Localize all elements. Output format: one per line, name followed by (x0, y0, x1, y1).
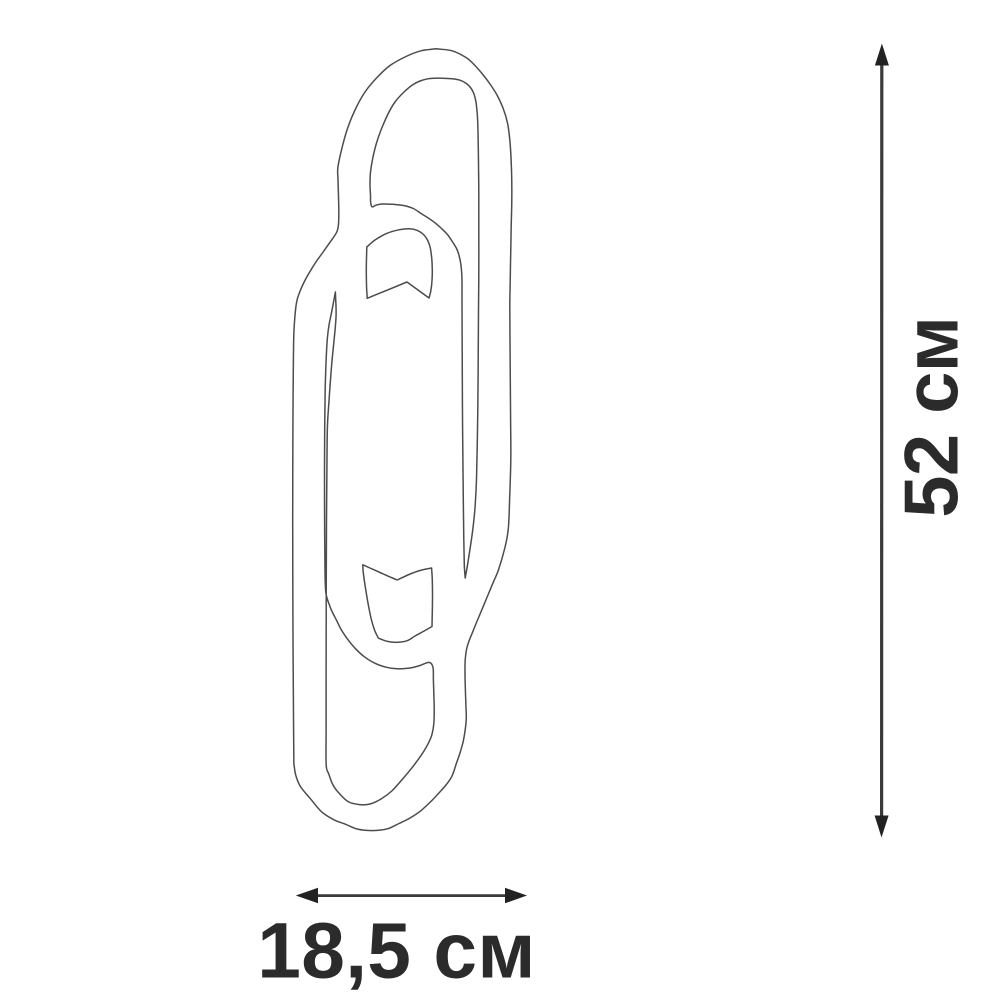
svg-text:18,5 см: 18,5 см (257, 907, 535, 995)
svg-text:52 см: 52 см (889, 317, 974, 518)
